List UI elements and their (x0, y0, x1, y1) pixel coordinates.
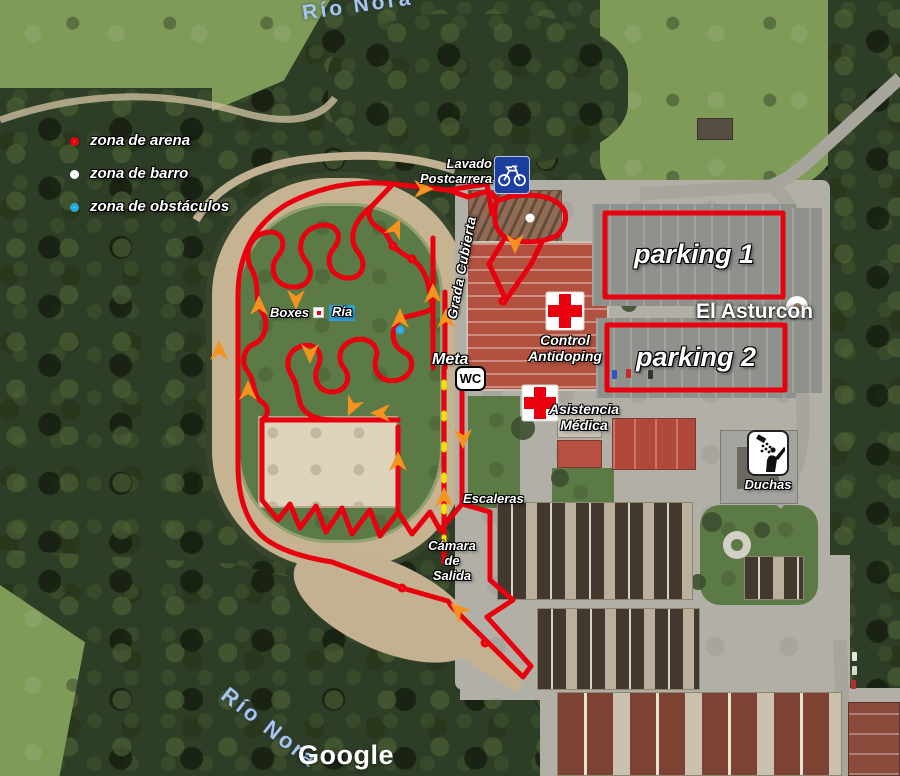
label-meta: Meta (432, 351, 468, 369)
legend: zona de arena zona de barro zona de obst… (70, 132, 280, 231)
label-boxes: Boxes (270, 306, 309, 321)
obstacle-zone-icon (70, 203, 79, 212)
wc-label: WC (460, 371, 482, 386)
label-camara-salida: Cámara de Salida (421, 539, 483, 584)
wc-sign: WC (455, 366, 486, 391)
legend-item-sand: zona de arena (70, 132, 280, 150)
shower-sign (747, 430, 789, 476)
legend-item-mud: zona de barro (70, 165, 280, 183)
shower-icon (751, 434, 785, 472)
label-ria: Ría (329, 305, 355, 321)
label-duchas: Duchas (744, 478, 792, 493)
label-parking2: parking 2 (607, 325, 785, 390)
label-control-antidoping: Control Antidoping (505, 332, 625, 364)
legend-label: zona de obstáculos (90, 198, 229, 215)
google-watermark[interactable]: Google (298, 740, 394, 771)
legend-item-obstacles: zona de obstáculos (70, 198, 280, 216)
bike-wash-sign (494, 156, 530, 194)
sand-zone-icon (70, 137, 79, 146)
course-marker-sand (389, 242, 398, 251)
course-marker-sand (398, 584, 407, 593)
label-el-asturcon[interactable]: El Asturcon (696, 300, 813, 324)
boxes-icon (313, 307, 324, 318)
label-lavado: Lavado Postcarrera (420, 157, 492, 187)
legend-label: zona de arena (90, 132, 190, 149)
label-escaleras: Escaleras (463, 492, 524, 507)
mud-zone-icon (70, 170, 79, 179)
label-parking1: parking 1 (605, 213, 783, 297)
course-marker-sand (481, 639, 490, 648)
label-asistencia-medica: Asistencia Médica (548, 401, 620, 433)
course-marker-sand (408, 255, 417, 264)
course-marker-obstacles (396, 326, 405, 335)
course-marker-mud (526, 214, 535, 223)
bicycle-icon (497, 162, 527, 188)
legend-label: zona de barro (90, 165, 188, 182)
course-marker-sand (499, 297, 508, 306)
satellite-map[interactable]: WC Río Nora Río Nora Lavado Postcarrera … (0, 0, 900, 776)
